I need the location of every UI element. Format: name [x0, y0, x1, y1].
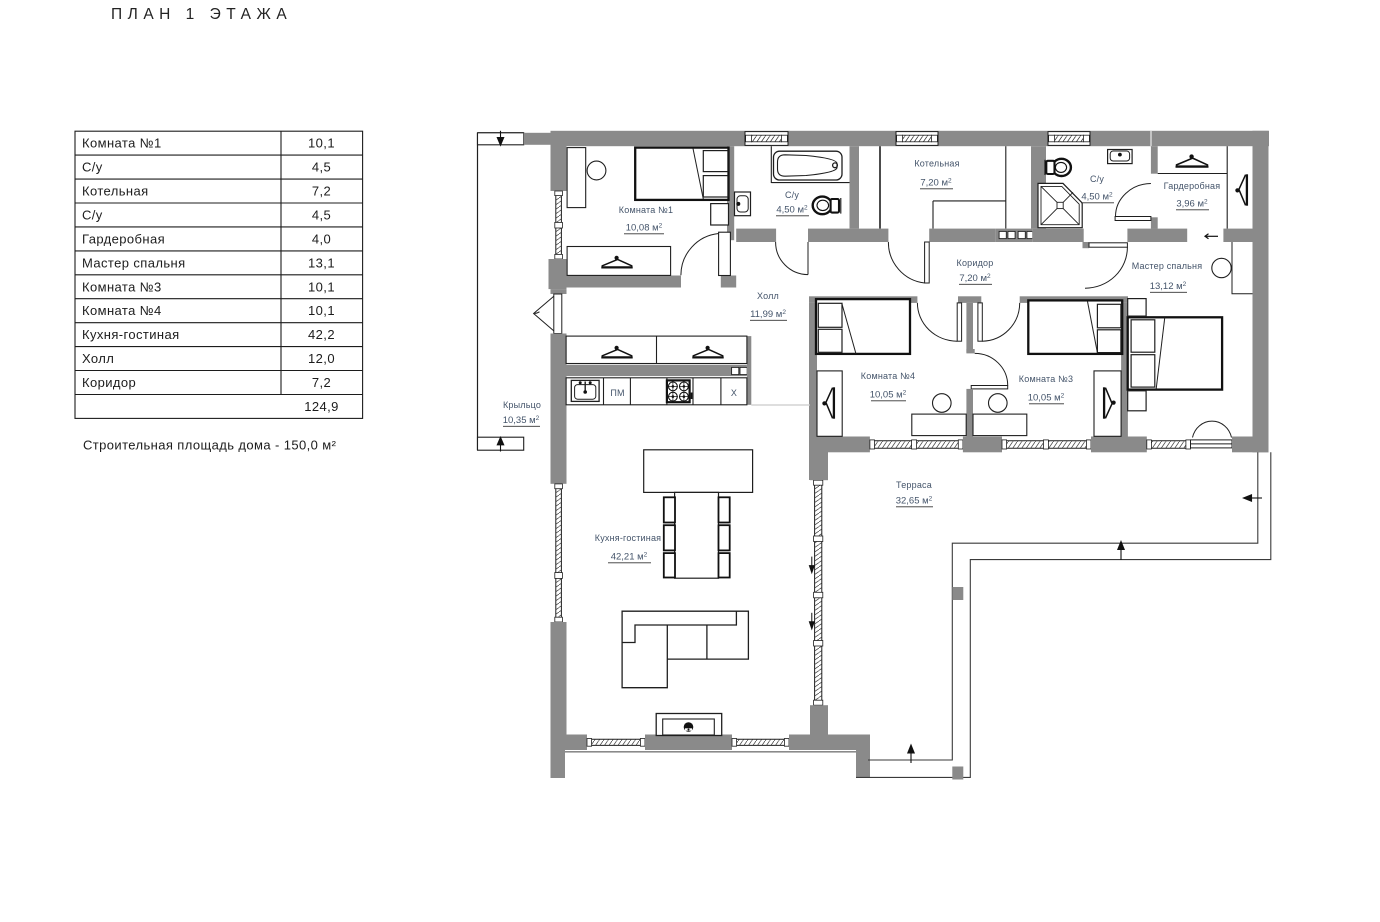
- svg-text:X: X: [731, 388, 737, 398]
- svg-text:10,35 м2: 10,35 м2: [503, 415, 540, 426]
- svg-text:13,12 м2: 13,12 м2: [1150, 281, 1187, 292]
- svg-text:4,5: 4,5: [312, 208, 331, 223]
- svg-text:Мастер спальня: Мастер спальня: [82, 255, 186, 270]
- svg-text:Комната №3: Комната №3: [82, 279, 162, 294]
- svg-text:Строительная площадь дома - 15: Строительная площадь дома - 150,0 м²: [83, 438, 337, 453]
- svg-text:7,20 м2: 7,20 м2: [920, 178, 952, 189]
- svg-text:ПЛАН 1 ЭТАЖА: ПЛАН 1 ЭТАЖА: [111, 6, 292, 23]
- svg-text:Комната №1: Комната №1: [82, 136, 162, 151]
- svg-text:Холл: Холл: [757, 291, 779, 301]
- svg-text:10,1: 10,1: [308, 136, 335, 151]
- svg-text:124,9: 124,9: [304, 399, 339, 414]
- svg-text:10,08 м2: 10,08 м2: [626, 223, 663, 234]
- svg-text:Коридор: Коридор: [82, 375, 136, 390]
- svg-text:10,1: 10,1: [308, 279, 335, 294]
- svg-text:10,05 м2: 10,05 м2: [1028, 393, 1065, 404]
- svg-text:С/у: С/у: [82, 160, 103, 175]
- svg-text:Комната №4: Комната №4: [82, 303, 162, 318]
- svg-text:Холл: Холл: [82, 351, 114, 366]
- svg-text:Крыльцо: Крыльцо: [503, 400, 541, 410]
- svg-text:7,2: 7,2: [312, 375, 331, 390]
- svg-text:42,2: 42,2: [308, 327, 335, 342]
- svg-text:32,65 м2: 32,65 м2: [896, 496, 933, 507]
- svg-text:С/у: С/у: [1090, 174, 1104, 184]
- svg-text:11,99 м2: 11,99 м2: [750, 309, 786, 320]
- svg-text:Комната №3: Комната №3: [1019, 374, 1073, 384]
- svg-text:Котельная: Котельная: [82, 184, 149, 199]
- svg-text:Комната №1: Комната №1: [619, 205, 673, 215]
- svg-text:7,2: 7,2: [312, 184, 331, 199]
- svg-text:4,5: 4,5: [312, 160, 331, 175]
- svg-text:Мастер спальня: Мастер спальня: [1132, 261, 1203, 271]
- svg-text:Кухня-гостиная: Кухня-гостиная: [82, 327, 180, 342]
- svg-text:Коридор: Коридор: [957, 258, 994, 268]
- svg-text:Кухня-гостиная: Кухня-гостиная: [595, 533, 661, 543]
- svg-text:7,20 м2: 7,20 м2: [959, 273, 991, 284]
- svg-text:ПМ: ПМ: [610, 388, 624, 398]
- svg-text:С/у: С/у: [785, 190, 799, 200]
- svg-text:Гардеробная: Гардеробная: [1164, 181, 1221, 191]
- svg-text:42,21 м2: 42,21 м2: [611, 552, 648, 563]
- svg-text:10,1: 10,1: [308, 303, 335, 318]
- svg-text:10,05 м2: 10,05 м2: [870, 390, 907, 401]
- svg-text:Котельная: Котельная: [914, 159, 959, 169]
- svg-text:4,50 м2: 4,50 м2: [776, 205, 808, 216]
- svg-text:Гардеробная: Гардеробная: [82, 231, 165, 246]
- svg-text:4,0: 4,0: [312, 231, 331, 246]
- svg-text:12,0: 12,0: [308, 351, 335, 366]
- svg-text:13,1: 13,1: [308, 255, 335, 270]
- svg-text:4,50 м2: 4,50 м2: [1081, 192, 1113, 203]
- svg-text:Комната №4: Комната №4: [861, 371, 915, 381]
- svg-text:Терраса: Терраса: [896, 480, 932, 490]
- svg-text:С/у: С/у: [82, 208, 103, 223]
- svg-text:3,96 м2: 3,96 м2: [1176, 199, 1208, 210]
